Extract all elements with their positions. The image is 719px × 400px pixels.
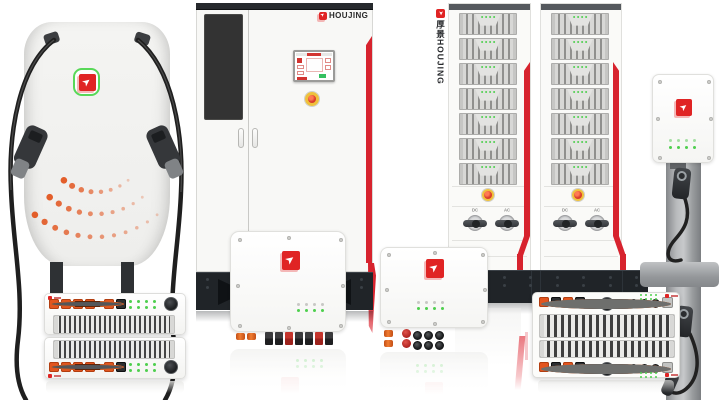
led-icon: [432, 370, 435, 373]
status-leds: [417, 301, 444, 310]
led-icon: [640, 376, 642, 378]
connector-orange-cyl-icon: [236, 333, 245, 340]
led-icon: [305, 309, 308, 312]
led-icon: [312, 359, 315, 362]
screw-icon: [236, 284, 240, 288]
led-icon: [416, 370, 419, 373]
led-icon: [440, 370, 443, 373]
spacer: [587, 297, 598, 298]
connector-orange-cyl-icon: [384, 340, 393, 347]
led-icon: [320, 365, 323, 368]
led-icon: [433, 307, 436, 310]
screw-icon: [387, 253, 391, 257]
led-icon: [320, 359, 323, 362]
terminal-red-icon: [315, 332, 323, 345]
screw-icon: [387, 320, 391, 324]
reflection-leds: [296, 359, 323, 368]
led-icon: [650, 376, 652, 378]
led-icon: [417, 307, 420, 310]
spacer: [395, 339, 400, 340]
terminal-dark-icon: [265, 332, 273, 345]
screw-icon: [238, 238, 242, 242]
charging-cable: [668, 196, 687, 261]
product-showcase: ➤ HOUJING ➤ 厚景HOUJING: [0, 0, 719, 400]
screw-icon: [483, 288, 487, 292]
screw-icon: [339, 324, 343, 328]
spacer: [395, 329, 400, 330]
terminal-red-icon: [285, 332, 293, 345]
led-icon: [677, 146, 680, 149]
connector-round-icon: [413, 341, 422, 350]
led-icon: [650, 372, 652, 374]
screw-icon: [433, 322, 437, 326]
led-icon: [640, 294, 642, 296]
vent-grille-icon: [539, 340, 675, 358]
led-icon: [640, 372, 642, 374]
screw-icon: [656, 117, 660, 121]
wall-charger-compact: ➤: [652, 74, 714, 163]
wall-charger-box: ➤: [230, 231, 346, 332]
screw-icon: [658, 156, 662, 160]
led-icon: [693, 139, 696, 142]
connector-row: [384, 339, 444, 350]
screw-icon: [287, 326, 291, 330]
led-icon: [296, 365, 299, 368]
box-reflection: [230, 349, 346, 400]
led-icon: [416, 364, 419, 367]
connector-orange-cyl-icon: [384, 330, 393, 337]
led-icon: [433, 301, 436, 304]
terminal-dark-icon: [275, 332, 283, 345]
led-icon: [669, 146, 672, 149]
led-icon: [655, 298, 657, 300]
status-leds: [640, 372, 657, 378]
led-icon: [321, 303, 324, 306]
status-leds: [297, 303, 324, 312]
led-icon: [669, 139, 672, 142]
led-icon: [441, 307, 444, 310]
led-icon: [417, 301, 420, 304]
status-leds: [640, 294, 657, 300]
led-icon: [677, 139, 680, 142]
module-reflection: [538, 380, 674, 393]
box-reflection: [380, 352, 488, 400]
led-icon: [693, 146, 696, 149]
led-icon: [645, 372, 647, 374]
reflection-logo: [281, 377, 299, 393]
led-icon: [321, 309, 324, 312]
screw-icon: [433, 251, 437, 255]
connector-round-icon: [435, 341, 444, 350]
led-icon: [655, 376, 657, 378]
led-icon: [650, 298, 652, 300]
led-icon: [424, 370, 427, 373]
terminal-dark-icon: [305, 332, 313, 345]
screw-icon: [287, 236, 291, 240]
spacer: [616, 362, 627, 363]
led-icon: [305, 303, 308, 306]
connector-silver-icon: [662, 362, 673, 373]
spacer: [258, 332, 263, 333]
terminal-dark-icon: [325, 332, 333, 345]
led-icon: [645, 294, 647, 296]
vent-grille-icon: [539, 314, 675, 338]
terminal-dark-icon: [295, 332, 303, 345]
screw-icon: [481, 320, 485, 324]
led-icon: [425, 307, 428, 310]
brand-logo-icon: ➤: [426, 259, 444, 278]
led-icon: [297, 303, 300, 306]
led-icon: [425, 301, 428, 304]
screw-icon: [385, 288, 389, 292]
led-icon: [313, 309, 316, 312]
screw-icon: [707, 156, 711, 160]
screw-icon: [238, 324, 242, 328]
screw-icon: [481, 253, 485, 257]
led-icon: [304, 365, 307, 368]
connector-orange-cyl-icon: [247, 333, 256, 340]
led-icon: [441, 301, 444, 304]
led-icon: [645, 298, 647, 300]
power-module-wide: [532, 292, 680, 378]
connector-round-icon: [424, 341, 433, 350]
led-icon: [685, 139, 688, 142]
connector-red-icon: [402, 339, 411, 348]
mini-brand-logo-icon: [665, 294, 678, 299]
reflection-leds: [416, 364, 443, 373]
screw-icon: [341, 284, 345, 288]
led-icon: [304, 359, 307, 362]
led-icon: [313, 303, 316, 306]
wall-charger-box: ➤: [380, 247, 488, 328]
screw-icon: [339, 238, 343, 242]
led-icon: [424, 364, 427, 367]
led-icon: [297, 309, 300, 312]
led-icon: [296, 359, 299, 362]
screw-icon: [707, 80, 711, 84]
led-icon: [655, 294, 657, 296]
reflection-logo: [425, 382, 443, 396]
led-icon: [685, 146, 688, 149]
spacer: [616, 297, 627, 298]
led-icon: [640, 298, 642, 300]
spacer: [587, 362, 598, 363]
status-leds: [669, 139, 696, 149]
screw-icon: [709, 117, 713, 121]
screw-icon: [658, 80, 662, 84]
gun-connector-icon: [676, 170, 687, 181]
led-icon: [312, 365, 315, 368]
terminal-row: [236, 332, 333, 345]
mini-brand-logo-icon: [665, 373, 678, 378]
brand-logo-icon: ➤: [282, 251, 300, 270]
led-icon: [655, 372, 657, 374]
brand-logo-icon: ➤: [676, 99, 692, 116]
led-icon: [650, 294, 652, 296]
led-icon: [432, 364, 435, 367]
led-icon: [645, 376, 647, 378]
charging-gun: [671, 167, 691, 200]
connector-red-icon: [402, 329, 411, 338]
led-icon: [440, 364, 443, 367]
